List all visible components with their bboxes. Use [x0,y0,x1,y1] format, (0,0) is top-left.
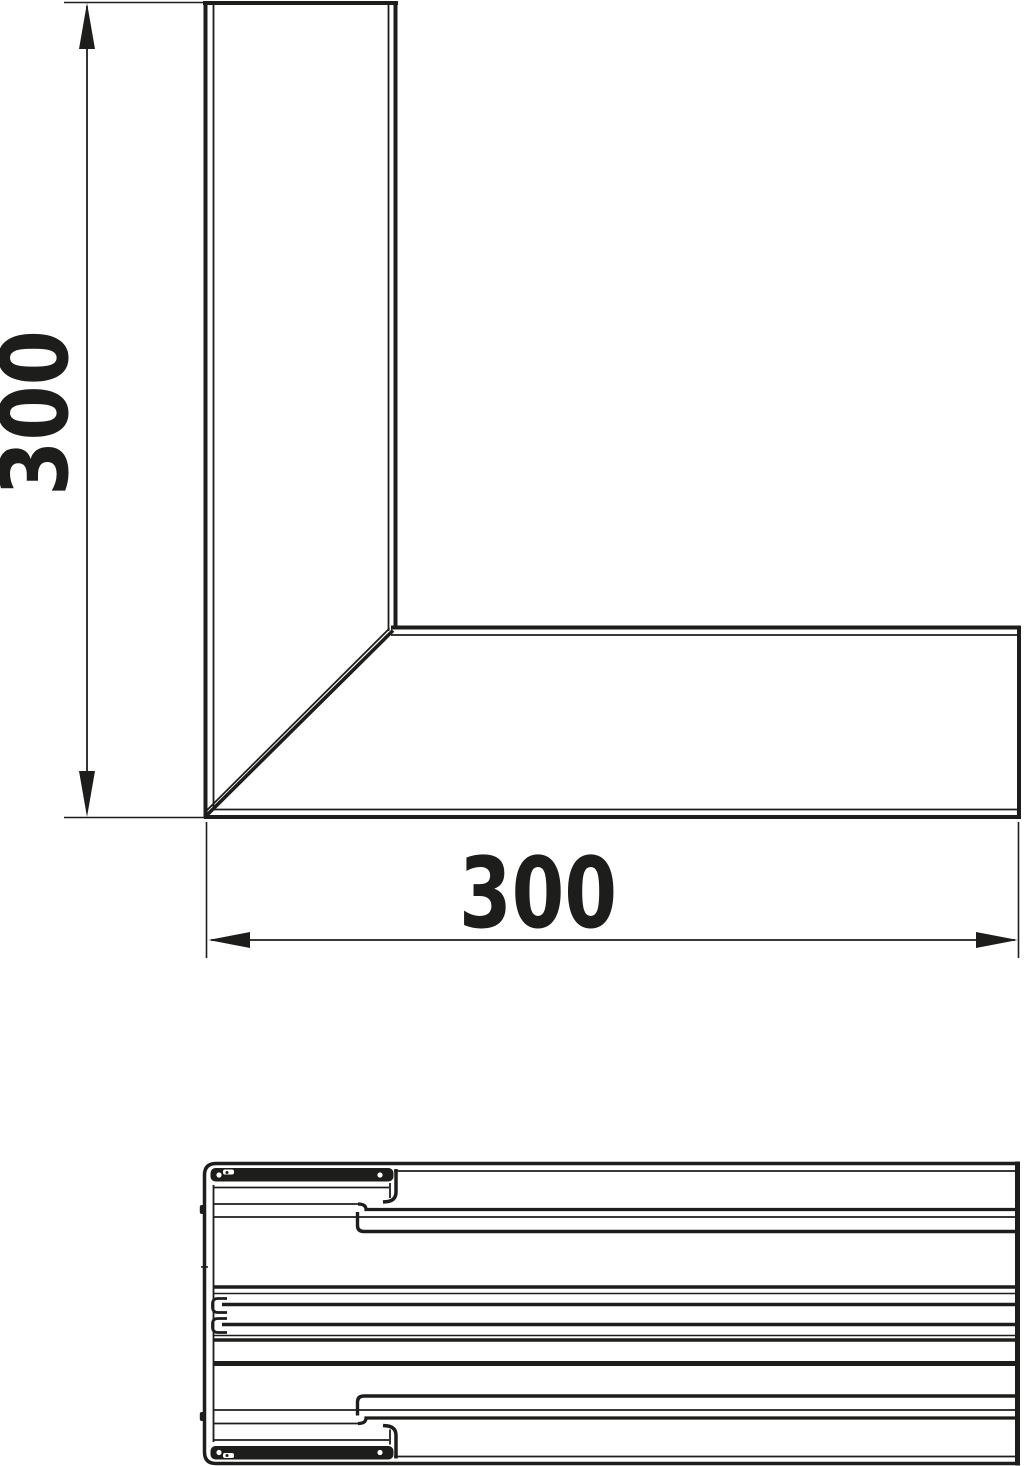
wall-bump-bottom [200,1412,205,1421]
vertical-dimension-label: 300 [0,330,89,496]
cover-latch-dot-top [226,1171,229,1174]
miter-seam-diagonal [205,628,393,815]
cover-hole-top-right-icon [377,1172,382,1177]
drawing-sheet: 300 300 [0,0,1024,1466]
profile-section-view [200,1162,1018,1466]
wall-bump-top [200,1205,205,1214]
cover-edge-band-top [211,1168,394,1182]
profile-outer-shell [200,1162,1018,1466]
cover-hole-bottom-right-icon [377,1450,382,1455]
arrowhead-right-icon [976,932,1018,948]
cover-latch-dot-bottom [226,1454,229,1457]
technical-drawing-canvas: 300 300 [0,0,1024,1466]
horizontal-dimension-label: 300 [459,837,617,951]
profile-top-cover [211,1168,1016,1202]
profile-bottom-clip-rails [214,1396,1016,1424]
arrowhead-up-icon [79,3,95,49]
profile-bottom-cover [211,1426,1016,1460]
profile-middle-rail [213,1287,1016,1364]
cover-hole-top-left-icon [216,1172,221,1177]
cover-hole-bottom-left-icon [216,1450,221,1455]
profile-top-clip-rails [214,1204,1016,1232]
arrowhead-down-icon [79,771,95,817]
cover-edge-band-bottom [211,1446,394,1460]
cover-latch-notch-top [223,1170,234,1175]
corner-piece-top-view [203,1,1019,819]
dimension-annotations: 300 300 [0,3,1019,959]
arrowhead-left-icon [209,932,251,948]
